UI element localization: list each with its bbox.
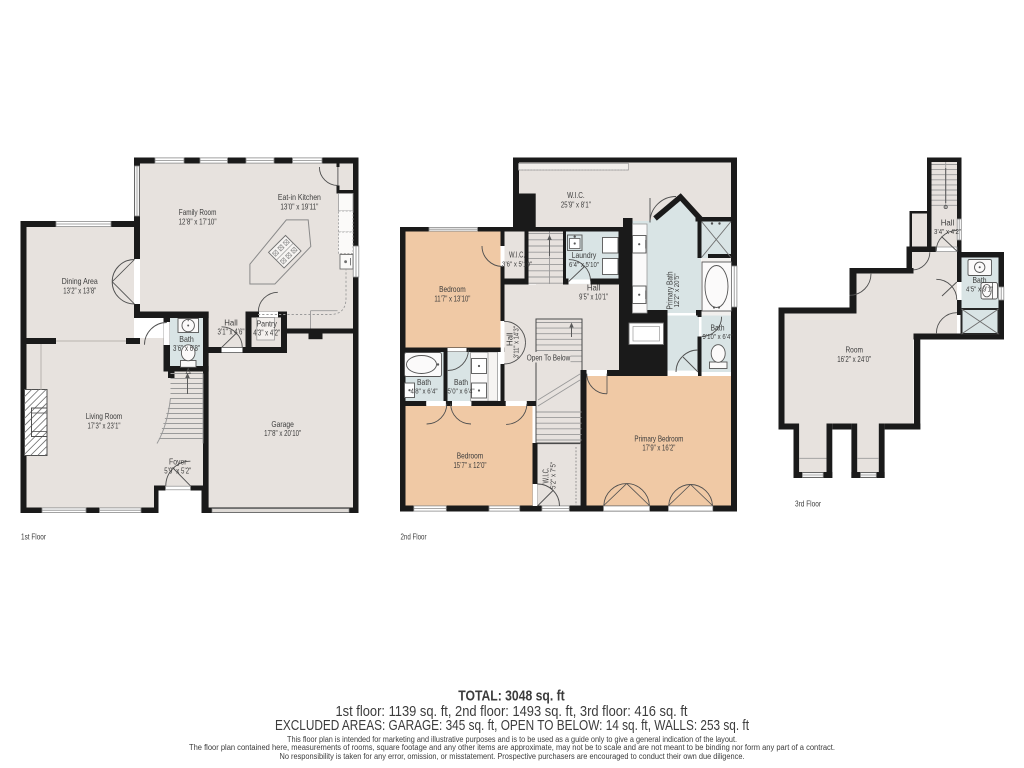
svg-text:3rd Floor: 3rd Floor [795,498,821,508]
svg-text:Primary Bedroom: Primary Bedroom [634,433,683,443]
svg-text:2nd Floor: 2nd Floor [401,532,427,542]
svg-text:12’2" x 20’5": 12’2" x 20’5" [672,273,681,307]
svg-text:Hall: Hall [224,318,238,328]
svg-text:16’2" x 24’0": 16’2" x 24’0" [837,355,871,364]
svg-text:3’4" x 4’2": 3’4" x 4’2" [934,227,961,236]
svg-text:25’9" x 8’1": 25’9" x 8’1" [561,200,591,209]
svg-text:13’2" x 13’8": 13’2" x 13’8" [63,287,96,296]
svg-text:Hall: Hall [587,283,601,293]
svg-text:The floor plan contained here,: The floor plan contained here, measureme… [189,743,835,752]
svg-text:Family Room: Family Room [179,207,217,217]
svg-text:Pantry: Pantry [256,319,277,329]
svg-text:5’2" x 7’5": 5’2" x 7’5" [549,462,558,489]
svg-text:9’10" x 6’4": 9’10" x 6’4" [703,332,733,341]
svg-text:5’9" x 5’2": 5’9" x 5’2" [164,467,191,476]
svg-text:17’3" x 23’1": 17’3" x 23’1" [88,422,121,431]
svg-text:15’7" x 12’0": 15’7" x 12’0" [454,461,487,470]
svg-text:17’8" x 20’10": 17’8" x 20’10" [264,429,301,438]
svg-text:Eat-in Kitchen: Eat-in Kitchen [278,192,321,202]
svg-text:4’8" x 6’4": 4’8" x 6’4" [411,387,438,396]
svg-text:4’5" x 9’1": 4’5" x 9’1" [966,285,993,294]
svg-text:Laundry: Laundry [572,250,597,260]
svg-text:No responsibility is taken for: No responsibility is taken for any error… [280,752,745,761]
svg-text:Bedroom: Bedroom [439,284,466,294]
svg-text:Garage: Garage [271,419,294,429]
svg-text:3’11" x 14’3": 3’11" x 14’3" [512,326,521,358]
svg-text:Room: Room [845,345,863,355]
svg-text:EXCLUDED AREAS: GARAGE: 345 sq: EXCLUDED AREAS: GARAGE: 345 sq. ft, OPEN… [275,718,749,734]
svg-text:3’6" x 5’10": 3’6" x 5’10" [502,259,532,268]
svg-text:11’7" x 13’10": 11’7" x 13’10" [434,294,470,303]
svg-text:12’8" x 17’10": 12’8" x 17’10" [179,217,217,226]
svg-text:1st Floor: 1st Floor [21,532,46,542]
svg-text:9’5" x 10’1": 9’5" x 10’1" [579,292,608,301]
svg-text:W.I.C.: W.I.C. [509,251,525,260]
svg-text:13’0" x 19’11": 13’0" x 19’11" [280,202,318,211]
svg-text:Bedroom: Bedroom [457,451,484,461]
svg-text:Living Room: Living Room [86,411,123,421]
svg-text:3’6" x 6’8": 3’6" x 6’8" [173,344,200,353]
svg-text:Open To Below: Open To Below [527,354,571,363]
svg-text:17’9" x 16’2": 17’9" x 16’2" [642,444,675,453]
svg-text:W.I.C.: W.I.C. [567,190,585,200]
svg-text:6’4" x 5’10": 6’4" x 5’10" [569,260,599,269]
svg-text:5’0" x 6’4": 5’0" x 6’4" [448,387,475,396]
svg-text:TOTAL: 3048 sq. ft: TOTAL: 3048 sq. ft [458,688,565,705]
svg-text:4’3" x 4’2": 4’3" x 4’2" [253,329,280,338]
svg-text:Bath: Bath [179,334,194,344]
svg-text:3’1" x 4’6": 3’1" x 4’6" [218,328,245,337]
svg-text:Foyer: Foyer [169,457,187,467]
svg-text:Dining Area: Dining Area [62,276,98,286]
